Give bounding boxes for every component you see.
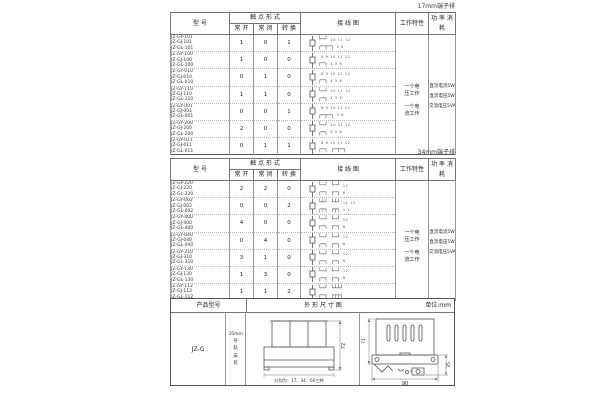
coil-icon <box>309 182 316 197</box>
contact-symbol: ┌─┐ <box>318 96 327 102</box>
model-number: JZ-GL-040 <box>171 243 229 248</box>
header-product-model: 产品型号 <box>171 299 247 312</box>
diagram-bottom-line: ┌─┐ ┌─┐6 <box>318 258 348 265</box>
changeover-count: 0 <box>278 181 301 198</box>
col-header-normally-closed: 常 闭 <box>254 170 278 181</box>
coil-icon <box>309 104 316 119</box>
work-characteristic-label: 一个电 压工作 <box>396 84 428 97</box>
front-view-drawing: 72 分别为：17、34、60三种 <box>246 313 360 385</box>
wiring-diagram: └─┘ └─┘12┌─┐ ┌─┐6 <box>301 267 395 282</box>
col-header-wiring: 接 线 图 <box>301 13 396 35</box>
model-number: JZ-GL-400 <box>171 226 229 231</box>
diagram-bottom-line: ┌─┬─┐5 6 <box>318 112 350 119</box>
coil-icon <box>309 267 316 282</box>
normally-closed-count: 0 <box>254 215 278 232</box>
wiring-diagram-cell: └┴┘ └┴┘11 12┌┬┐ ┌┬┐1 4 <box>301 198 396 215</box>
spec-table-17mm-section: 17mm端子排 型 号 触 点 形 式 接 线 图 工作特性 功 率 消 耗 常… <box>170 3 455 155</box>
contact-symbol: ┌─┬─┐ <box>318 113 334 119</box>
normally-open-count: 0 <box>230 198 254 215</box>
model-cell: JZ-GY-010JZ-GJ-010JZ-GL-010 <box>171 69 230 86</box>
normally-open-count: 1 <box>230 35 254 52</box>
diagram-lines: └─┘ └─┘12┌─┐ ┌─┐6 <box>318 234 348 248</box>
terminal-numbers: 4 5 6 <box>330 63 342 68</box>
header-outline-drawing: 外 形 尺 寸 图 <box>247 299 399 312</box>
diagram-top-line: └─┘ └─┘12 <box>318 268 348 275</box>
model-number: JZ-GL-101 <box>171 46 229 51</box>
coil-icon <box>309 70 316 85</box>
coil-icon <box>309 216 316 231</box>
diagram-bottom-line: ┌─┬─┐5 6 <box>318 43 351 50</box>
model-cell: JZ-GY-130JZ-GJ-130JZ-GL-130 <box>171 266 230 283</box>
model-cell: JZ-GY-101JZ-GJ-101JZ-GL-101 <box>171 35 230 52</box>
wiring-diagram-cell: 8 9 10 11 12┌─┐4 5 6 <box>301 52 396 69</box>
diagram-top-line: └─┘ └─┘12 <box>318 251 348 258</box>
model-number: JZ-GL-001 <box>171 114 229 119</box>
coil-icon <box>309 199 316 214</box>
changeover-count: 0 <box>278 86 301 103</box>
contact-symbol: ┌─┐ ┌─┐ <box>318 276 340 282</box>
diagram-bottom-line: ┌─┐4 5 6 <box>318 60 350 67</box>
normally-closed-count: 4 <box>254 232 278 249</box>
normally-open-count: 2 <box>230 120 254 137</box>
wiring-diagram-cell: └─┘ └─┘12┌─┐ ┌─┐6 <box>301 266 396 283</box>
terminal-numbers: 1 4 <box>343 209 350 214</box>
terminal-numbers: 4 5 6 <box>330 97 342 102</box>
diagram-top-line: 8 9 10 11 12 <box>318 139 350 146</box>
model-cell: JZ-GY-002JZ-GJ-002JZ-GL-002 <box>171 198 230 215</box>
normally-closed-count: 0 <box>254 103 278 120</box>
model-cell: JZ-GY-040JZ-GJ-040JZ-GL-040 <box>171 232 230 249</box>
power-consumption-cell: 直流电流5W直流电压5W交流电压5VA <box>429 35 456 155</box>
diagram-lines: └─┘10 11 12┌─┬─┐5 6 <box>318 36 351 50</box>
model-number: JZ-GL-130 <box>171 278 229 283</box>
normally-open-count: 1 <box>230 266 254 283</box>
terminal-numbers: 4 5 6 <box>330 131 342 136</box>
diagram-bottom-line: ┌─┐4 5 6 <box>318 95 351 102</box>
col-header-wiring: 接 线 图 <box>301 159 396 181</box>
normally-open-count: 1 <box>230 86 254 103</box>
changeover-count: 0 <box>278 266 301 283</box>
side-view-drawing: 71 35 90 <box>360 313 454 385</box>
col-header-contact-form: 触 点 形 式 <box>230 13 301 24</box>
normally-open-count: 2 <box>230 181 254 198</box>
normally-open-count: 3 <box>230 249 254 266</box>
diagram-top-line: └┴┘ └┴┘11 12 <box>318 199 356 206</box>
model-number: JZ-GL-310 <box>171 260 229 265</box>
wiring-diagram: 8 9 10 11 12┌─┐4 5 6 <box>301 70 395 85</box>
diagram-bottom-line: ┌─┐4 5 6 <box>318 129 351 136</box>
diagram-lines: └─┘ └┴┴┘┌─┐ ┌┬┬┐ <box>318 285 346 299</box>
mounting-note: 35mm 导 轨 安 装 <box>226 313 246 385</box>
work-characteristic-cell: 一个电 压工作一个电 流工作 <box>396 181 429 301</box>
terminal-numbers: 4 5 6 <box>330 80 342 85</box>
spec-table-17mm: 型 号 触 点 形 式 接 线 图 工作特性 功 率 消 耗 常 开 常 闭 转… <box>170 12 456 155</box>
terminal-size-label-34mm: 34mm端子排 <box>170 149 455 157</box>
normally-closed-count: 1 <box>254 86 278 103</box>
diagram-top-line: └─┘ └─┘12 <box>318 182 348 189</box>
diagram-bottom-line: ┌─┐ ┌─┐6 <box>318 223 348 230</box>
normally-closed-count: 3 <box>254 266 278 283</box>
work-characteristic-label: 一个电 压工作 <box>396 230 428 243</box>
col-header-work: 工作特性 <box>396 159 429 181</box>
power-consumption-label: 交流电压5VA <box>429 104 455 109</box>
diagram-top-line: 8 9 10 11 12 <box>318 105 350 112</box>
diagram-lines: 8 9 10 11 12┌─┐4 5 6 <box>318 70 350 84</box>
changeover-count: 0 <box>278 232 301 249</box>
contact-symbol: ┌─┐ <box>318 130 327 136</box>
wiring-diagram: └─┘10 11 12┌─┐4 5 6 <box>301 87 395 102</box>
wiring-diagram: 8 9 10 11 12┌─┐4 5 6 <box>301 53 395 68</box>
normally-closed-count: 1 <box>254 69 278 86</box>
diagram-top-line: 8 9 10 11 12 <box>318 70 350 77</box>
diagram-bottom-line: ┌┬┐ ┌┬┐1 4 <box>318 206 356 213</box>
power-consumption-label: 直流电压5W <box>429 240 455 245</box>
normally-closed-count: 0 <box>254 120 278 137</box>
model-number: JZ-GL-002 <box>171 209 229 214</box>
diagram-top-line: └─┘10 11 12 <box>318 88 351 95</box>
model-cell: JZ-GY-400JZ-GJ-400JZ-GL-400 <box>171 215 230 232</box>
front-view-caption: 分别为：17、34、60三种 <box>274 377 324 384</box>
work-characteristic-cell: 一个电 压工作一个电 流工作 <box>396 35 429 155</box>
col-header-contact-form: 触 点 形 式 <box>230 159 301 170</box>
wiring-diagram-cell: └─┘10 11 12┌─┐4 5 6 <box>301 86 396 103</box>
diagram-lines: └┴┘ └┴┘11 12┌┬┐ ┌┬┐1 4 <box>318 199 356 213</box>
product-model-value: JZ-G <box>171 313 226 385</box>
normally-closed-count: 2 <box>254 181 278 198</box>
diagram-top-line: └─┘ └┴┴┘ <box>318 285 346 292</box>
col-header-changeover: 转 换 <box>278 24 301 35</box>
contact-symbol: ┌─┐ ┌─┐ <box>318 190 340 196</box>
diagram-lines: └─┘ └─┘12┌─┐ ┌─┐6 <box>318 268 348 282</box>
terminal-numbers: 6 <box>343 243 346 248</box>
diagram-bottom-line: ┌─┐ ┌─┐6 <box>318 275 348 282</box>
wiring-diagram: └─┘10 11 12┌─┐4 5 6 <box>301 121 395 136</box>
terminal-numbers: 6 <box>343 277 346 282</box>
wiring-diagram-cell: 8 9 10 11 12┌─┬─┐5 6 <box>301 103 396 120</box>
coil-icon <box>309 87 316 102</box>
wiring-diagram: 8 9 10 11 12┌─┬─┐5 6 <box>301 104 395 119</box>
normally-open-count: 0 <box>230 103 254 120</box>
diagram-lines: └─┘10 11 12┌─┐4 5 6 <box>318 88 351 102</box>
coil-icon <box>309 53 316 68</box>
terminal-numbers: 6 <box>343 260 346 265</box>
model-number: JZ-GL-100 <box>171 63 229 68</box>
wiring-diagram-cell: └─┘ └─┘12┌─┐ ┌─┐6 <box>301 232 396 249</box>
wiring-diagram-cell: 8 9 10 11 12┌─┐4 5 6 <box>301 69 396 86</box>
normally-closed-count: 1 <box>254 249 278 266</box>
power-consumption-label: 交流电压5VA <box>429 250 455 255</box>
model-number: JZ-GL-200 <box>171 132 229 137</box>
contact-symbol: ┌─┐ <box>318 78 327 84</box>
side-rail-dimension: 35 <box>446 362 452 368</box>
col-header-model: 型 号 <box>171 13 230 35</box>
front-height-dim-line <box>327 321 342 370</box>
diagram-lines: └─┘ └─┘12┌─┐ ┌─┐6 <box>318 182 348 196</box>
changeover-count: 2 <box>278 198 301 215</box>
wiring-diagram-cell: └─┘ └─┘12┌─┐ ┌─┐6 <box>301 215 396 232</box>
changeover-count: 0 <box>278 215 301 232</box>
power-consumption-cell: 直流电流5W直流电压5W交流电压5VA <box>429 181 456 301</box>
front-height-dimension: 72 <box>341 343 347 349</box>
model-cell: JZ-GY-100JZ-GJ-100JZ-GL-100 <box>171 52 230 69</box>
col-header-power: 功 率 消 耗 <box>429 159 456 181</box>
diagram-lines: └─┘10 11 12┌─┐4 5 6 <box>318 122 351 136</box>
side-depth-dim-line <box>372 365 438 381</box>
model-number: JZ-GL-010 <box>171 80 229 85</box>
power-consumption-label: 直流电压5W <box>429 94 455 99</box>
diagram-bottom-line: ┌─┐ ┌─┐6 <box>318 189 348 196</box>
datasheet-page: 17mm端子排 型 号 触 点 形 式 接 线 图 工作特性 功 率 消 耗 常… <box>0 0 600 400</box>
side-height-dim-line <box>368 319 376 364</box>
contact-symbol: ┌─┐ ┌─┐ <box>318 242 340 248</box>
model-cell: JZ-GY-220JZ-GJ-220JZ-GL-220 <box>171 181 230 198</box>
changeover-count: 0 <box>278 69 301 86</box>
wiring-diagram: └─┘10 11 12┌─┬─┐5 6 <box>301 36 395 51</box>
model-cell: JZ-GY-110JZ-GJ-110JZ-GL-110 <box>171 86 230 103</box>
contact-symbol: ┌┬┐ ┌┬┐ <box>318 207 340 213</box>
terminal-numbers: 5 6 <box>337 46 344 51</box>
wiring-diagram: └┴┘ └┴┘11 12┌┬┐ ┌┬┐1 4 <box>301 199 395 214</box>
normally-open-count: 0 <box>230 232 254 249</box>
diagram-lines: 8 9 10 11 12┌─┬─┐5 6 <box>318 105 350 119</box>
side-depth-dimension: 90 <box>402 381 408 386</box>
wiring-diagram: └─┘ └─┘12┌─┐ ┌─┐6 <box>301 250 395 265</box>
side-view-outline <box>372 319 438 375</box>
changeover-count: 0 <box>278 120 301 137</box>
model-cell: JZ-GY-200JZ-GJ-200JZ-GL-200 <box>171 120 230 137</box>
terminal-numbers: 6 <box>343 226 346 231</box>
wiring-diagram-cell: └─┘10 11 12┌─┐4 5 6 <box>301 120 396 137</box>
diagram-bottom-line: ┌─┐ ┌─┐6 <box>318 241 348 248</box>
diagram-bottom-line: ┌─┐4 5 6 <box>318 77 350 84</box>
diagram-top-line: └─┘ └─┘12 <box>318 216 348 223</box>
contact-symbol: ┌─┐ ┌─┐ <box>318 224 340 230</box>
changeover-count: 1 <box>278 103 301 120</box>
normally-closed-count: 0 <box>254 35 278 52</box>
contact-symbol: ┌─┐ <box>318 61 327 67</box>
model-cell: JZ-GY-001JZ-GJ-001JZ-GL-001 <box>171 103 230 120</box>
diagram-lines: └─┘ └─┘12┌─┐ ┌─┐6 <box>318 251 348 265</box>
power-consumption-label: 直流电流5W <box>429 84 455 89</box>
changeover-count: 0 <box>278 52 301 69</box>
contact-symbol: ┌─┐ ┌─┐ <box>318 259 340 265</box>
col-header-work: 工作特性 <box>396 13 429 35</box>
changeover-count: 0 <box>278 249 301 266</box>
work-characteristic-label: 一个电 流工作 <box>396 104 428 117</box>
wiring-diagram-cell: └─┘ └─┘12┌─┐ ┌─┐6 <box>301 181 396 198</box>
col-header-changeover: 转 换 <box>278 170 301 181</box>
terminal-size-label-17mm: 17mm端子排 <box>170 3 455 11</box>
terminal-numbers: 5 6 <box>337 114 344 119</box>
contact-symbol: ┌─┬─┐ <box>318 44 334 50</box>
changeover-count: 1 <box>278 35 301 52</box>
coil-icon <box>309 121 316 136</box>
model-number: JZ-GL-110 <box>171 97 229 102</box>
wiring-diagram-cell: └─┘ └─┘12┌─┐ ┌─┐6 <box>301 249 396 266</box>
front-width-dim-line <box>264 373 334 377</box>
diagram-top-line: └─┘10 11 12 <box>318 122 351 129</box>
spec-table-34mm: 型 号 触 点 形 式 接 线 图 工作特性 功 率 消 耗 常 开 常 闭 转… <box>170 158 456 301</box>
coil-icon <box>309 36 316 51</box>
normally-closed-count: 0 <box>254 198 278 215</box>
wiring-diagram-cell: └─┘10 11 12┌─┬─┐5 6 <box>301 35 396 52</box>
model-number: JZ-GL-220 <box>171 192 229 197</box>
model-cell: JZ-GY-310JZ-GJ-310JZ-GL-310 <box>171 249 230 266</box>
dimension-table-header: 产品型号 外 形 尺 寸 图 单位:mm <box>171 299 454 313</box>
wiring-diagram: └─┘ └─┘12┌─┐ ┌─┐6 <box>301 182 395 197</box>
side-rail-dim-line <box>425 355 448 375</box>
terminal-numbers: 6 <box>343 192 346 197</box>
diagram-lines: └─┘ └─┘12┌─┐ ┌─┐6 <box>318 216 348 230</box>
work-characteristic-label: 一个电 流工作 <box>396 250 428 263</box>
normally-closed-count: 0 <box>254 52 278 69</box>
diagram-lines: 8 9 10 11 12┌─┐4 5 6 <box>318 53 350 67</box>
col-header-model: 型 号 <box>171 159 230 181</box>
col-header-normally-open: 常 开 <box>230 24 254 35</box>
normally-open-count: 0 <box>230 69 254 86</box>
dimension-table: 产品型号 外 形 尺 寸 图 单位:mm JZ-G 35mm 导 轨 安 装 <box>170 298 455 386</box>
power-consumption-label: 直流电流5W <box>429 230 455 235</box>
coil-icon <box>309 233 316 248</box>
diagram-top-line: └─┘ └─┘12 <box>318 234 348 241</box>
wiring-diagram: └─┘ └─┘12┌─┐ ┌─┐6 <box>301 233 395 248</box>
coil-icon <box>309 250 316 265</box>
header-unit: 单位:mm <box>399 299 454 312</box>
side-height-dimension: 71 <box>361 338 367 344</box>
col-header-power: 功 率 消 耗 <box>429 13 456 35</box>
spec-row: JZ-GY-220JZ-GJ-220JZ-GL-220220└─┘ └─┘12┌… <box>171 181 456 198</box>
normally-open-count: 4 <box>230 215 254 232</box>
diagram-top-line: └─┘10 11 12 <box>318 36 351 43</box>
wiring-diagram: └─┘ └─┘12┌─┐ ┌─┐6 <box>301 216 395 231</box>
diagram-top-line: 8 9 10 11 12 <box>318 53 350 60</box>
spec-row: JZ-GY-101JZ-GJ-101JZ-GL-101101└─┘10 11 1… <box>171 35 456 52</box>
spec-table-34mm-section: 34mm端子排 型 号 触 点 形 式 接 线 图 工作特性 功 率 消 耗 常… <box>170 149 455 301</box>
normally-open-count: 1 <box>230 52 254 69</box>
col-header-normally-open: 常 开 <box>230 170 254 181</box>
col-header-normally-closed: 常 闭 <box>254 24 278 35</box>
front-view-outline <box>264 321 334 370</box>
